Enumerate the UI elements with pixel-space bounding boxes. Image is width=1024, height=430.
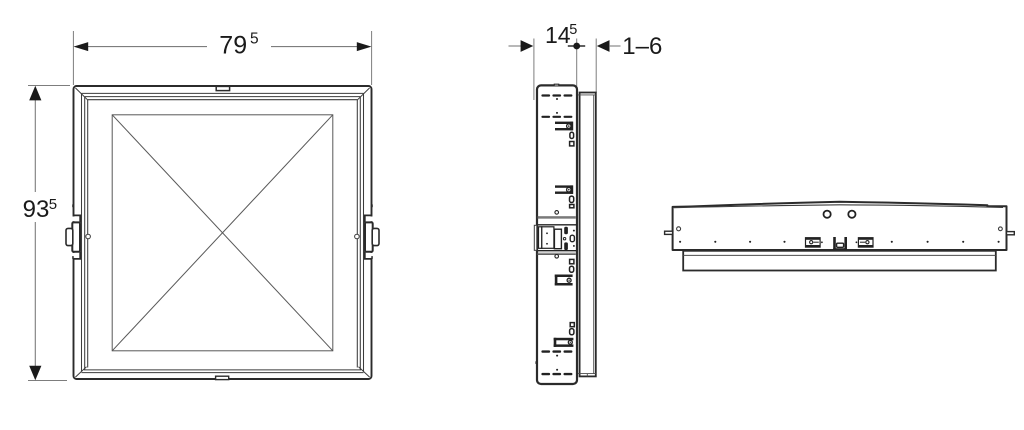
svg-text:93: 93 [23,196,50,223]
svg-text:79: 79 [219,32,247,60]
svg-text:14: 14 [545,22,571,48]
svg-text:5: 5 [49,196,57,213]
svg-text:5: 5 [250,30,259,47]
svg-text:5: 5 [569,22,577,38]
svg-text:1–6: 1–6 [622,33,662,60]
